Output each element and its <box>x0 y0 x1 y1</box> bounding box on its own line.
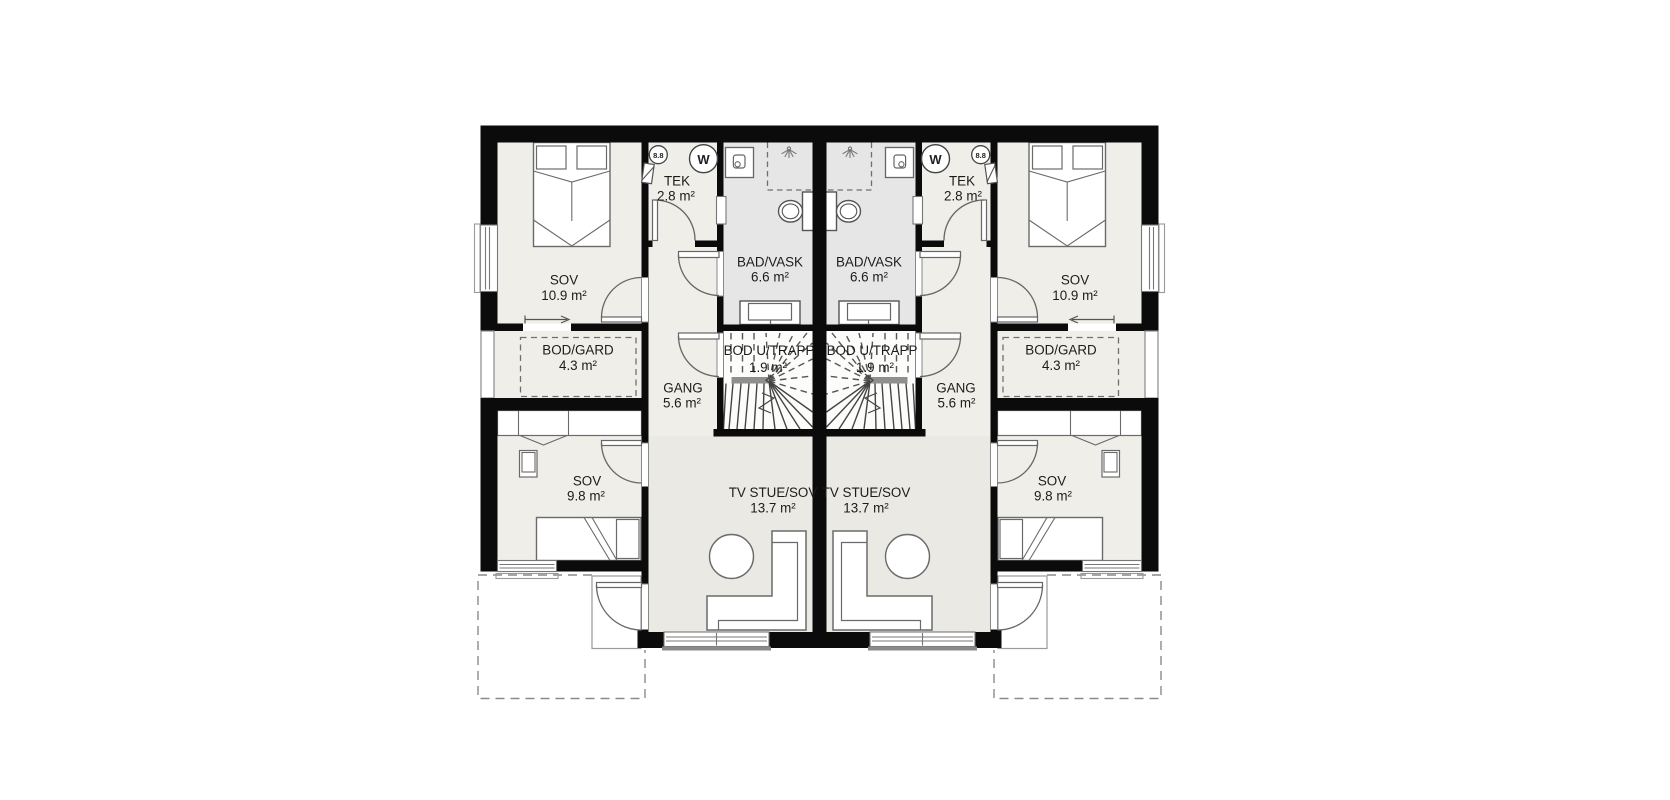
svg-text:BOD/GARD: BOD/GARD <box>1025 343 1097 358</box>
svg-text:13.7 m²: 13.7 m² <box>750 501 796 516</box>
svg-text:6.6 m²: 6.6 m² <box>751 270 789 285</box>
svg-text:10.9 m²: 10.9 m² <box>541 288 587 303</box>
svg-text:SOV: SOV <box>1038 474 1066 489</box>
svg-text:BAD/VASK: BAD/VASK <box>737 255 803 270</box>
svg-text:1.9 m²: 1.9 m² <box>749 360 787 375</box>
svg-text:SOV: SOV <box>573 474 601 489</box>
svg-text:4.3 m²: 4.3 m² <box>559 358 597 373</box>
svg-text:13.7 m²: 13.7 m² <box>843 501 889 516</box>
svg-text:4.3 m²: 4.3 m² <box>1042 358 1080 373</box>
svg-text:2.8 m²: 2.8 m² <box>657 189 695 204</box>
svg-text:BOD U/TRAPP: BOD U/TRAPP <box>827 343 918 358</box>
svg-text:5.6 m²: 5.6 m² <box>938 396 976 411</box>
svg-text:BOD/GARD: BOD/GARD <box>542 343 614 358</box>
svg-text:TV STUE/SOV: TV STUE/SOV <box>729 485 818 500</box>
svg-text:10.9 m²: 10.9 m² <box>1052 288 1098 303</box>
svg-text:TEK: TEK <box>949 174 975 189</box>
svg-text:8.8: 8.8 <box>653 151 663 160</box>
svg-text:1.9 m²: 1.9 m² <box>856 360 894 375</box>
svg-text:GANG: GANG <box>936 381 975 396</box>
svg-text:GANG: GANG <box>663 381 702 396</box>
svg-text:9.8 m²: 9.8 m² <box>1034 489 1072 504</box>
svg-text:5.6 m²: 5.6 m² <box>663 396 701 411</box>
svg-text:BAD/VASK: BAD/VASK <box>836 255 902 270</box>
svg-text:BOD U/TRAPP: BOD U/TRAPP <box>724 343 815 358</box>
svg-text:SOV: SOV <box>550 273 578 288</box>
svg-text:6.6 m²: 6.6 m² <box>850 270 888 285</box>
svg-text:W: W <box>929 152 942 167</box>
svg-text:8.8: 8.8 <box>975 151 985 160</box>
svg-text:TV STUE/SOV: TV STUE/SOV <box>822 485 911 500</box>
svg-text:W: W <box>697 152 710 167</box>
svg-text:9.8 m²: 9.8 m² <box>567 489 605 504</box>
svg-text:2.8 m²: 2.8 m² <box>944 189 982 204</box>
svg-text:SOV: SOV <box>1061 273 1089 288</box>
svg-text:TEK: TEK <box>664 174 690 189</box>
